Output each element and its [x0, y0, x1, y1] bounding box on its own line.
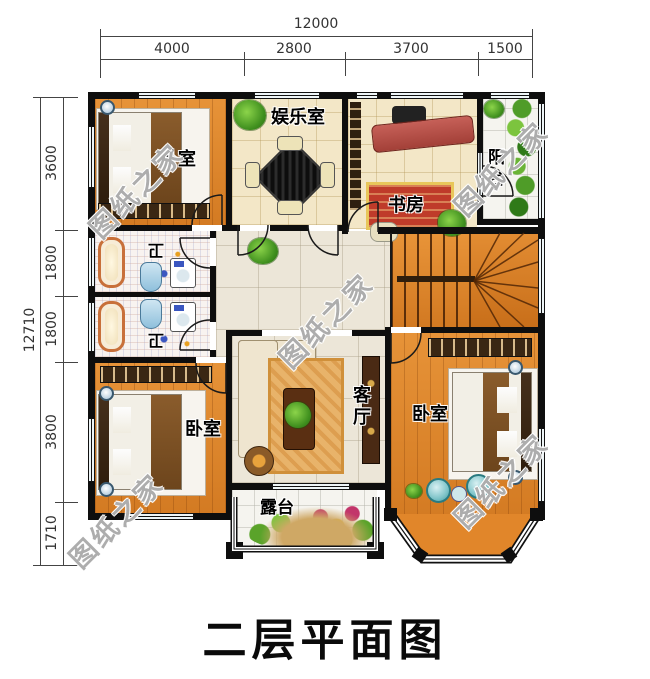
label-terrace: 露台	[260, 498, 294, 518]
bedside-lamp	[99, 386, 114, 401]
dim-top-seg: 2800	[264, 42, 324, 56]
chair	[277, 136, 303, 151]
stair-railing	[397, 276, 475, 282]
wall-interior	[421, 327, 538, 333]
floor-plan-page: 12000 4000 2800 3700 1500 12710 3600 180…	[0, 0, 650, 679]
wall-interior	[226, 92, 232, 231]
wardrobe	[428, 338, 532, 357]
bay-post	[412, 547, 429, 564]
wall-interior	[385, 483, 391, 520]
dim-left-total: 12710	[23, 298, 37, 362]
potted-plant	[484, 100, 504, 118]
dim-line	[63, 97, 64, 565]
wall-interior	[88, 357, 196, 363]
wall-interior	[342, 92, 348, 231]
bathtub-basin	[105, 308, 118, 345]
window	[390, 92, 464, 99]
wall-interior	[270, 225, 308, 231]
toilet	[170, 302, 196, 332]
potted-plant	[406, 484, 422, 498]
dim-tick	[55, 362, 78, 363]
table-plant	[285, 402, 311, 428]
dim-tick	[100, 29, 101, 78]
label-entertainment: 娱乐室	[258, 108, 338, 128]
bedside-lamp	[100, 100, 115, 115]
label-bedroom-right: 卧室	[412, 405, 448, 425]
wall-interior	[222, 225, 232, 231]
bay-chair	[426, 478, 451, 503]
dim-line	[100, 36, 532, 37]
window	[88, 418, 95, 482]
dim-line	[100, 59, 532, 60]
sink	[140, 262, 162, 292]
window	[254, 92, 320, 99]
terrace-column	[226, 542, 243, 559]
window	[138, 92, 196, 99]
wall-interior	[232, 225, 240, 231]
window	[88, 302, 95, 352]
wall-interior	[210, 231, 216, 238]
window	[538, 238, 545, 314]
window	[88, 126, 95, 188]
potted-plant	[248, 238, 278, 264]
label-bedroom-bottom-left: 卧室	[185, 420, 221, 440]
sink	[140, 299, 162, 329]
bay-post	[501, 547, 518, 564]
chair	[277, 200, 303, 215]
chair	[245, 162, 260, 188]
dim-tick	[345, 52, 346, 76]
wall-interior	[342, 227, 348, 234]
wall-interior	[483, 219, 538, 225]
side-table	[244, 446, 274, 476]
dim-line	[40, 97, 41, 565]
dim-left-seg: 1800	[45, 231, 59, 295]
bookshelf	[350, 102, 361, 210]
label-bath-lower: 卫	[148, 330, 164, 350]
dim-left-seg: 1800	[45, 297, 59, 361]
toilet	[170, 258, 196, 288]
label-living: 客厅	[350, 385, 370, 429]
plan-title: 二层平面图	[150, 604, 500, 668]
dim-top-total: 12000	[286, 17, 346, 31]
wall-interior	[210, 350, 216, 357]
terrace-column	[367, 542, 384, 559]
bedside-lamp	[508, 360, 523, 375]
dim-top-seg: 4000	[142, 42, 202, 56]
wall-interior	[232, 330, 262, 336]
wall-interior	[352, 330, 385, 336]
dim-top-seg: 1500	[475, 42, 535, 56]
dim-top-seg: 3700	[381, 42, 441, 56]
label-study: 书房	[388, 196, 424, 216]
dim-left-seg: 3600	[45, 131, 59, 195]
sliding-door	[272, 483, 350, 490]
wall-interior	[210, 266, 216, 322]
bathtub-basin	[105, 244, 118, 281]
bathtub	[98, 301, 125, 352]
window	[356, 92, 378, 99]
chair	[320, 162, 335, 188]
dim-left-seg: 3800	[45, 400, 59, 464]
label-bath-upper: 卫	[148, 240, 164, 260]
wardrobe	[100, 366, 212, 383]
dim-tick	[244, 52, 245, 76]
wall-interior	[385, 333, 391, 483]
hall-floor	[216, 330, 226, 357]
wall-interior	[95, 292, 210, 297]
dim-tick	[33, 97, 78, 98]
staircase-winder	[471, 233, 538, 327]
window	[490, 92, 530, 99]
wall-interior	[226, 483, 272, 490]
